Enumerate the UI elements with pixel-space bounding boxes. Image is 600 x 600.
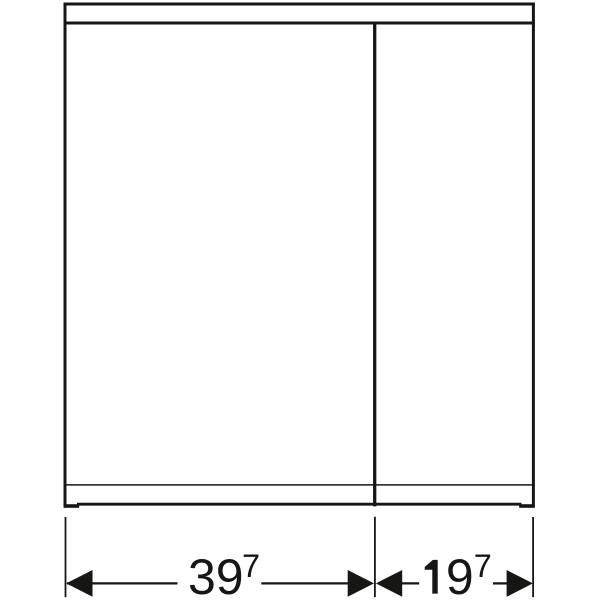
svg-text:7: 7 xyxy=(242,548,260,584)
svg-text:9: 9 xyxy=(446,549,474,600)
svg-text:39: 39 xyxy=(188,549,244,600)
svg-text:7: 7 xyxy=(474,548,492,584)
